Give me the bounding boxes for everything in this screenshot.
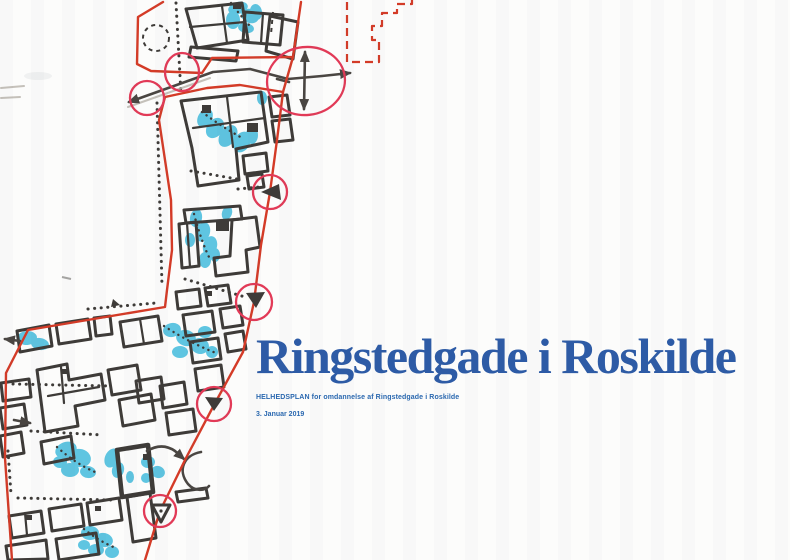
scan-smudges (24, 72, 71, 279)
report-cover-page: Ringstedgade i Roskilde HELHEDSPLAN for … (0, 0, 790, 560)
pencil-sketch-lines (1, 78, 210, 107)
page-title: Ringstedgade i Roskilde (256, 331, 735, 381)
dashed-circle-note (143, 25, 169, 51)
roads-and-arrows (5, 52, 350, 490)
proposed-area-dashed (347, 0, 412, 62)
title-block: Ringstedgade i Roskilde HELHEDSPLAN for … (256, 331, 735, 418)
solid-ink-marks (26, 3, 258, 520)
focus-node-circles (130, 43, 348, 527)
vertical-double-arrow (304, 52, 305, 109)
side-road-arrow (147, 447, 184, 460)
page-subtitle: HELHEDSPLAN for omdannelse af Ringstedga… (256, 394, 735, 401)
page-date: 3. Januar 2019 (256, 411, 735, 418)
tree-highlights (16, 0, 267, 558)
hand-drawn-plan-map (0, 0, 430, 560)
